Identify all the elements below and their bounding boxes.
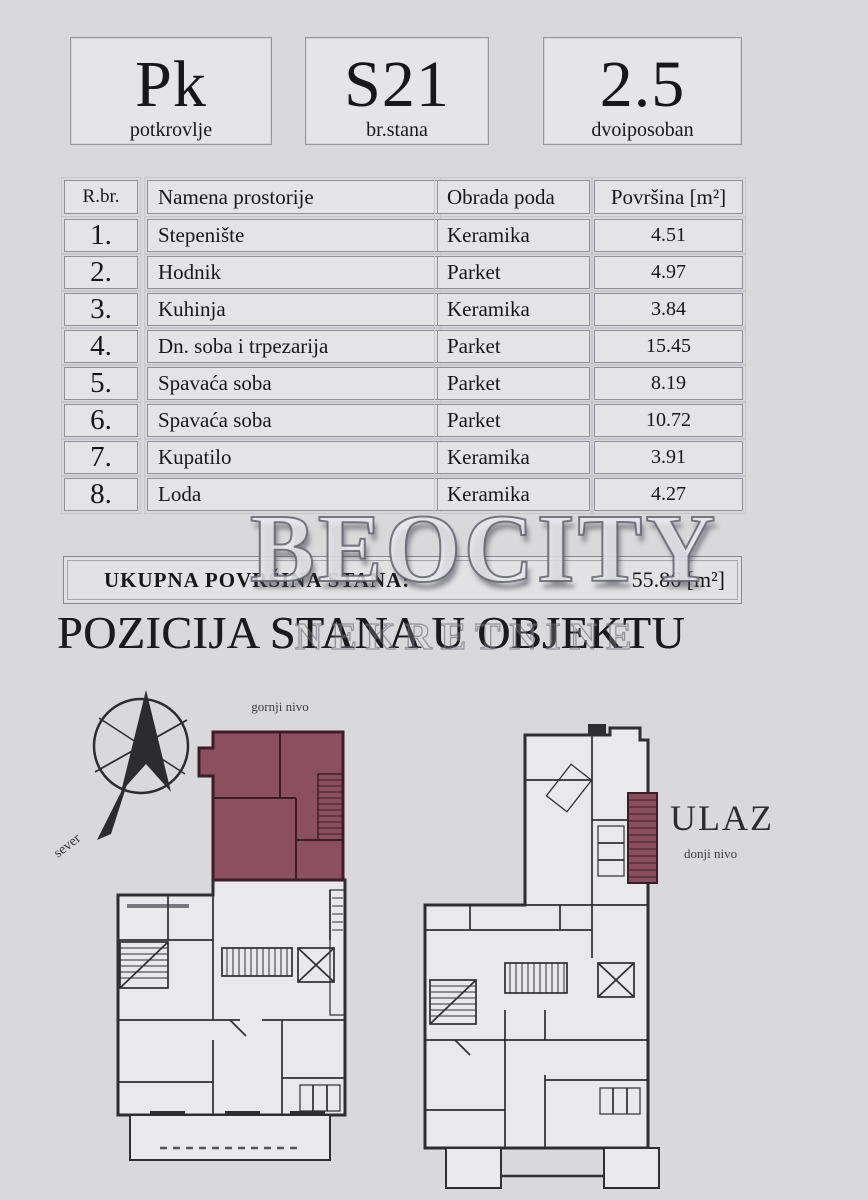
row-number: 1. <box>64 219 138 252</box>
row-number: 6. <box>64 404 138 437</box>
row-floor: Parket <box>437 367 590 400</box>
row-number: 2. <box>64 256 138 289</box>
row-room: Kuhinja <box>147 293 438 326</box>
compass-icon: sever <box>51 690 188 861</box>
row-floor: Keramika <box>437 293 590 326</box>
row-floor: Keramika <box>437 219 590 252</box>
upper-level-plan <box>118 732 345 1160</box>
row-room: Dn. soba i trpezarija <box>147 330 438 363</box>
col-header-room: Namena prostorije <box>147 180 438 214</box>
level-value: Pk <box>135 54 207 117</box>
row-floor: Parket <box>437 404 590 437</box>
total-area-value: 55.86 [m²] <box>632 557 725 603</box>
row-floor: Keramika <box>437 441 590 474</box>
row-number: 5. <box>64 367 138 400</box>
floor-plans-figure: sever <box>0 680 868 1200</box>
compass-north-label: sever <box>51 831 84 861</box>
row-number: 4. <box>64 330 138 363</box>
row-area: 4.27 <box>594 478 743 511</box>
level-box: Pk potkrovlje <box>70 37 272 145</box>
room-count-box: 2.5 dvoiposoban <box>543 37 742 145</box>
row-area: 4.51 <box>594 219 743 252</box>
row-room: Loda <box>147 478 438 511</box>
row-area: 10.72 <box>594 404 743 437</box>
row-number: 7. <box>64 441 138 474</box>
highlighted-apartment <box>199 732 343 880</box>
row-room: Stepenište <box>147 219 438 252</box>
row-room: Spavaća soba <box>147 367 438 400</box>
row-room: Spavaća soba <box>147 404 438 437</box>
row-area: 3.84 <box>594 293 743 326</box>
lower-level-plan <box>425 724 659 1188</box>
col-header-number: R.br. <box>64 180 138 214</box>
row-area: 8.19 <box>594 367 743 400</box>
row-area: 15.45 <box>594 330 743 363</box>
row-area: 4.97 <box>594 256 743 289</box>
total-area-label: UKUPNA POVRŠINA STANA: <box>104 557 410 603</box>
row-number: 8. <box>64 478 138 511</box>
row-room: Kupatilo <box>147 441 438 474</box>
unit-number-box: S21 br.stana <box>305 37 489 145</box>
row-number: 3. <box>64 293 138 326</box>
row-floor: Keramika <box>437 478 590 511</box>
unit-number-label: br.stana <box>366 119 428 144</box>
row-floor: Parket <box>437 330 590 363</box>
row-area: 3.91 <box>594 441 743 474</box>
room-count-value: 2.5 <box>600 54 686 117</box>
col-header-floor: Obrada poda <box>437 180 590 214</box>
level-label: potkrovlje <box>130 119 212 144</box>
highlighted-entrance-stairs <box>628 793 657 883</box>
row-room: Hodnik <box>147 256 438 289</box>
apartment-spec-sheet: Pk potkrovlje S21 br.stana 2.5 dvoiposob… <box>0 0 868 1200</box>
room-count-label: dvoiposoban <box>591 119 693 144</box>
unit-number-value: S21 <box>344 54 450 117</box>
row-floor: Parket <box>437 256 590 289</box>
col-header-area: Površina [m²] <box>594 180 743 214</box>
section-title: POZICIJA STANA U OBJEKTU <box>57 606 685 659</box>
total-area-box: UKUPNA POVRŠINA STANA: 55.86 [m²] <box>63 556 742 604</box>
